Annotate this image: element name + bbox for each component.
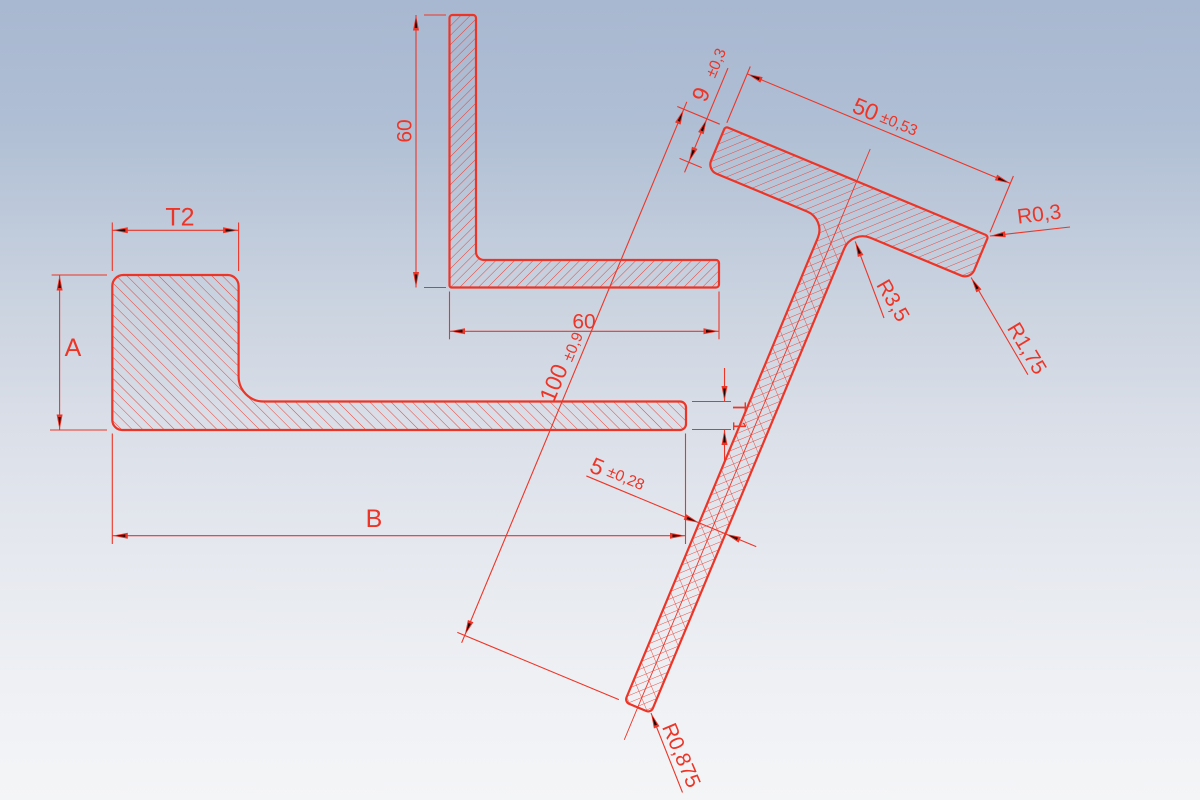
svg-text:B: B [366,505,383,533]
svg-text:A: A [65,334,82,362]
svg-text:T2: T2 [165,204,194,232]
svg-text:60: 60 [394,119,417,142]
